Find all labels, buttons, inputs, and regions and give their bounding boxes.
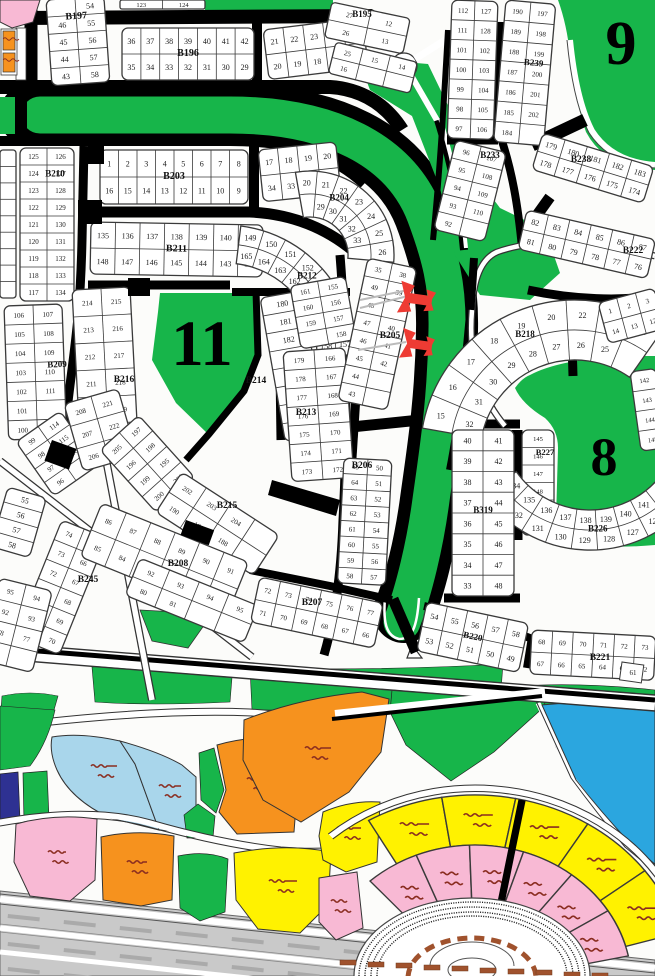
svg-text:B209: B209 xyxy=(47,359,67,370)
svg-text:200: 200 xyxy=(532,70,544,79)
svg-text:57: 57 xyxy=(370,573,378,581)
svg-text:9: 9 xyxy=(606,10,637,78)
svg-text:184: 184 xyxy=(501,129,513,138)
svg-text:145: 145 xyxy=(647,436,655,444)
svg-text:68: 68 xyxy=(538,638,546,646)
svg-text:26: 26 xyxy=(378,248,386,257)
svg-text:126: 126 xyxy=(55,153,66,161)
svg-text:101: 101 xyxy=(456,46,467,54)
svg-text:102: 102 xyxy=(16,388,27,396)
svg-text:126: 126 xyxy=(649,517,655,526)
svg-text:124: 124 xyxy=(28,170,39,178)
svg-text:37: 37 xyxy=(464,499,472,508)
svg-text:123: 123 xyxy=(28,187,39,195)
svg-text:19: 19 xyxy=(293,59,302,69)
svg-text:25: 25 xyxy=(375,229,383,238)
svg-text:58: 58 xyxy=(346,572,354,580)
svg-text:21: 21 xyxy=(322,180,330,189)
svg-text:127: 127 xyxy=(627,528,639,537)
svg-text:17: 17 xyxy=(467,358,475,367)
svg-text:38: 38 xyxy=(165,37,173,46)
svg-text:31: 31 xyxy=(203,63,211,72)
svg-text:67: 67 xyxy=(537,660,545,668)
svg-text:27: 27 xyxy=(552,343,560,352)
svg-text:18: 18 xyxy=(313,57,322,67)
svg-text:16: 16 xyxy=(105,187,113,196)
svg-text:128: 128 xyxy=(55,187,66,195)
svg-text:8: 8 xyxy=(591,427,618,487)
svg-text:62: 62 xyxy=(349,510,357,518)
svg-text:106: 106 xyxy=(477,126,488,134)
svg-text:B207: B207 xyxy=(302,598,323,608)
svg-text:189: 189 xyxy=(510,28,522,37)
svg-text:149: 149 xyxy=(244,233,256,242)
svg-text:103: 103 xyxy=(479,67,490,75)
svg-text:B203: B203 xyxy=(163,171,185,182)
svg-text:177: 177 xyxy=(296,394,308,403)
svg-text:34: 34 xyxy=(267,183,276,193)
svg-text:20: 20 xyxy=(273,62,282,72)
svg-text:112: 112 xyxy=(458,7,469,15)
svg-text:22: 22 xyxy=(290,34,299,44)
svg-text:29: 29 xyxy=(508,361,516,370)
svg-text:185: 185 xyxy=(503,108,515,117)
svg-text:213: 213 xyxy=(83,326,94,335)
svg-text:36: 36 xyxy=(127,37,135,46)
svg-text:41: 41 xyxy=(222,37,230,46)
svg-text:B195: B195 xyxy=(352,9,372,19)
svg-text:171: 171 xyxy=(331,447,343,456)
svg-text:46: 46 xyxy=(495,540,503,549)
svg-text:131: 131 xyxy=(532,524,544,533)
svg-text:18: 18 xyxy=(490,337,498,346)
svg-text:20: 20 xyxy=(547,313,555,322)
svg-text:107: 107 xyxy=(42,310,53,318)
svg-text:53: 53 xyxy=(373,511,381,519)
svg-text:33: 33 xyxy=(165,63,173,72)
svg-text:10: 10 xyxy=(216,187,224,196)
svg-text:B222: B222 xyxy=(623,246,644,256)
svg-text:178: 178 xyxy=(295,375,307,384)
svg-text:15: 15 xyxy=(124,187,132,196)
svg-text:24: 24 xyxy=(367,212,375,221)
svg-text:145: 145 xyxy=(533,436,543,443)
svg-text:144: 144 xyxy=(645,416,655,424)
svg-text:33: 33 xyxy=(464,582,472,591)
svg-text:5: 5 xyxy=(181,160,185,169)
svg-text:55: 55 xyxy=(87,18,96,28)
svg-text:52: 52 xyxy=(374,495,382,503)
svg-text:60: 60 xyxy=(348,541,356,549)
svg-text:215: 215 xyxy=(111,298,122,307)
svg-text:20: 20 xyxy=(303,179,311,188)
svg-text:99: 99 xyxy=(457,86,465,94)
svg-text:66: 66 xyxy=(557,661,565,669)
svg-text:32: 32 xyxy=(184,63,192,72)
svg-text:13: 13 xyxy=(161,187,169,196)
svg-text:4: 4 xyxy=(163,160,167,169)
svg-text:151: 151 xyxy=(285,250,297,259)
svg-text:65: 65 xyxy=(578,662,586,670)
svg-text:143: 143 xyxy=(219,259,231,268)
svg-text:54: 54 xyxy=(86,1,95,11)
svg-text:143: 143 xyxy=(642,397,653,405)
svg-text:139: 139 xyxy=(195,233,207,242)
svg-text:105: 105 xyxy=(14,331,25,339)
svg-text:39: 39 xyxy=(464,457,472,466)
svg-text:135: 135 xyxy=(523,495,535,504)
svg-text:118: 118 xyxy=(28,272,39,280)
svg-text:130: 130 xyxy=(555,532,567,541)
svg-text:45: 45 xyxy=(59,38,68,48)
svg-text:20: 20 xyxy=(323,151,332,161)
svg-text:12: 12 xyxy=(179,187,187,196)
svg-text:47: 47 xyxy=(495,561,503,570)
svg-text:30: 30 xyxy=(489,378,497,387)
svg-text:18: 18 xyxy=(284,155,293,165)
svg-text:100: 100 xyxy=(456,66,467,74)
svg-text:40: 40 xyxy=(464,436,472,445)
svg-text:127: 127 xyxy=(481,8,492,16)
svg-text:40: 40 xyxy=(203,37,211,46)
svg-text:109: 109 xyxy=(44,349,55,357)
svg-text:B226: B226 xyxy=(588,524,608,534)
svg-text:217: 217 xyxy=(114,352,125,361)
svg-text:15: 15 xyxy=(437,412,445,421)
svg-text:B239: B239 xyxy=(523,57,544,69)
svg-text:136: 136 xyxy=(122,232,134,241)
svg-text:132: 132 xyxy=(55,255,66,263)
svg-text:8: 8 xyxy=(237,160,241,169)
svg-text:166: 166 xyxy=(325,354,337,363)
svg-text:101: 101 xyxy=(17,407,28,415)
svg-text:34: 34 xyxy=(146,63,154,72)
svg-text:188: 188 xyxy=(508,48,520,57)
svg-text:146: 146 xyxy=(146,258,158,267)
svg-text:2: 2 xyxy=(126,160,130,169)
svg-text:30: 30 xyxy=(329,207,337,216)
svg-text:51: 51 xyxy=(375,480,383,488)
svg-text:169: 169 xyxy=(328,410,340,419)
svg-text:44: 44 xyxy=(60,55,69,65)
svg-text:55: 55 xyxy=(372,542,380,550)
svg-text:25: 25 xyxy=(601,345,609,354)
svg-text:134: 134 xyxy=(55,289,66,297)
svg-text:63: 63 xyxy=(350,494,358,502)
svg-text:104: 104 xyxy=(478,86,489,94)
svg-text:14: 14 xyxy=(142,187,150,196)
svg-text:B319: B319 xyxy=(473,505,493,515)
svg-text:214: 214 xyxy=(82,299,93,308)
svg-text:106: 106 xyxy=(13,311,24,319)
svg-text:B208: B208 xyxy=(168,559,189,569)
svg-text:B238: B238 xyxy=(571,155,592,165)
svg-text:147: 147 xyxy=(533,471,544,478)
svg-text:190: 190 xyxy=(512,7,524,16)
svg-text:57: 57 xyxy=(89,53,98,63)
svg-text:32: 32 xyxy=(466,420,474,429)
svg-text:111: 111 xyxy=(45,387,56,395)
svg-text:B197: B197 xyxy=(65,10,87,22)
svg-text:29: 29 xyxy=(317,203,325,212)
svg-text:139: 139 xyxy=(600,515,612,524)
svg-text:211: 211 xyxy=(86,380,97,389)
svg-text:B214: B214 xyxy=(246,376,267,386)
svg-text:197: 197 xyxy=(537,10,549,19)
svg-text:73: 73 xyxy=(641,643,649,651)
svg-text:179: 179 xyxy=(294,356,306,365)
svg-text:105: 105 xyxy=(477,106,488,114)
svg-text:72: 72 xyxy=(621,642,629,650)
svg-text:35: 35 xyxy=(464,540,472,549)
svg-text:B245: B245 xyxy=(78,575,99,585)
svg-text:17: 17 xyxy=(265,158,274,168)
svg-text:38: 38 xyxy=(464,478,472,487)
svg-text:187: 187 xyxy=(507,68,519,77)
svg-text:140: 140 xyxy=(620,510,632,519)
svg-text:111: 111 xyxy=(457,26,468,34)
svg-text:9: 9 xyxy=(237,187,241,196)
svg-text:174: 174 xyxy=(300,449,312,458)
svg-text:B196: B196 xyxy=(177,48,199,59)
svg-text:120: 120 xyxy=(28,238,39,246)
svg-text:11: 11 xyxy=(198,187,206,196)
svg-text:B204: B204 xyxy=(329,192,349,202)
svg-text:28: 28 xyxy=(529,349,537,358)
svg-text:148: 148 xyxy=(97,257,109,266)
svg-text:39: 39 xyxy=(184,37,192,46)
svg-text:43: 43 xyxy=(495,478,503,487)
svg-text:131: 131 xyxy=(55,238,66,246)
svg-text:164: 164 xyxy=(258,257,270,266)
svg-text:42: 42 xyxy=(495,457,503,466)
svg-text:201: 201 xyxy=(530,90,542,99)
svg-text:B213: B213 xyxy=(296,408,317,418)
svg-text:165: 165 xyxy=(240,252,252,261)
svg-text:133: 133 xyxy=(55,272,66,280)
svg-text:69: 69 xyxy=(559,639,567,647)
svg-text:61: 61 xyxy=(349,525,357,533)
svg-text:B233: B233 xyxy=(480,150,500,160)
svg-text:137: 137 xyxy=(560,513,572,522)
svg-text:B218: B218 xyxy=(515,329,535,339)
svg-text:23: 23 xyxy=(310,32,319,42)
svg-text:100: 100 xyxy=(17,426,28,434)
svg-text:B212: B212 xyxy=(297,271,317,281)
svg-text:128: 128 xyxy=(480,27,491,35)
svg-text:212: 212 xyxy=(85,353,96,362)
svg-text:36: 36 xyxy=(464,519,472,528)
svg-text:147: 147 xyxy=(121,258,133,267)
svg-text:198: 198 xyxy=(535,30,547,39)
svg-text:B215: B215 xyxy=(217,501,238,511)
svg-text:150: 150 xyxy=(265,240,277,249)
svg-text:21: 21 xyxy=(270,37,279,47)
svg-text:202: 202 xyxy=(528,111,540,120)
svg-text:98: 98 xyxy=(456,105,464,113)
svg-text:22: 22 xyxy=(579,311,587,320)
svg-text:168: 168 xyxy=(327,391,339,400)
svg-text:58: 58 xyxy=(91,70,100,80)
svg-text:35: 35 xyxy=(127,63,135,72)
svg-text:128: 128 xyxy=(603,535,615,544)
svg-text:108: 108 xyxy=(43,330,54,338)
svg-text:54: 54 xyxy=(373,527,381,535)
svg-text:50: 50 xyxy=(376,464,384,472)
svg-text:23: 23 xyxy=(355,198,363,207)
svg-text:170: 170 xyxy=(330,428,342,437)
svg-text:30: 30 xyxy=(222,63,230,72)
svg-text:31: 31 xyxy=(475,397,483,406)
svg-text:B221: B221 xyxy=(590,653,611,663)
svg-text:103: 103 xyxy=(15,369,26,377)
svg-text:34: 34 xyxy=(464,561,472,570)
svg-text:173: 173 xyxy=(301,468,313,477)
svg-text:59: 59 xyxy=(347,557,355,565)
svg-text:29: 29 xyxy=(241,63,249,72)
svg-text:26: 26 xyxy=(577,341,585,350)
svg-text:145: 145 xyxy=(170,258,182,267)
svg-text:216: 216 xyxy=(112,325,123,334)
svg-text:31: 31 xyxy=(339,215,347,224)
svg-text:117: 117 xyxy=(28,289,39,297)
svg-text:64: 64 xyxy=(599,663,607,671)
svg-text:144: 144 xyxy=(195,259,207,268)
svg-text:12: 12 xyxy=(649,317,655,327)
svg-text:124: 124 xyxy=(179,2,190,9)
svg-text:16: 16 xyxy=(449,383,457,392)
svg-text:B216: B216 xyxy=(114,375,135,385)
svg-text:44: 44 xyxy=(495,499,503,508)
svg-text:70: 70 xyxy=(579,640,587,648)
svg-text:175: 175 xyxy=(299,431,311,440)
svg-text:64: 64 xyxy=(351,479,359,487)
svg-text:121: 121 xyxy=(28,221,39,229)
svg-text:71: 71 xyxy=(600,641,608,649)
svg-text:32: 32 xyxy=(348,224,356,233)
svg-text:129: 129 xyxy=(579,536,591,545)
svg-text:130: 130 xyxy=(55,221,66,229)
svg-text:129: 129 xyxy=(55,204,66,212)
svg-text:102: 102 xyxy=(479,47,490,55)
svg-text:141: 141 xyxy=(638,500,650,509)
svg-text:B206: B206 xyxy=(352,461,373,471)
svg-text:43: 43 xyxy=(62,72,71,82)
svg-text:33: 33 xyxy=(353,236,361,245)
svg-text:3: 3 xyxy=(144,160,148,169)
svg-text:45: 45 xyxy=(495,519,503,528)
svg-text:97: 97 xyxy=(455,125,463,133)
svg-text:1: 1 xyxy=(107,160,111,169)
svg-text:163: 163 xyxy=(274,266,286,275)
svg-text:7: 7 xyxy=(218,160,222,169)
svg-text:123: 123 xyxy=(136,2,146,9)
svg-text:56: 56 xyxy=(88,36,97,46)
svg-text:186: 186 xyxy=(505,88,517,97)
svg-text:19: 19 xyxy=(303,153,312,163)
svg-text:125: 125 xyxy=(28,153,39,161)
svg-text:142: 142 xyxy=(639,377,650,385)
svg-text:33: 33 xyxy=(287,181,296,191)
svg-text:6: 6 xyxy=(200,160,204,169)
svg-text:136: 136 xyxy=(540,506,552,515)
svg-text:41: 41 xyxy=(495,436,503,445)
svg-text:167: 167 xyxy=(326,373,338,382)
svg-text:119: 119 xyxy=(28,255,39,263)
svg-text:B227: B227 xyxy=(536,447,555,457)
svg-text:56: 56 xyxy=(371,558,379,566)
svg-text:B210: B210 xyxy=(45,169,65,179)
svg-text:42: 42 xyxy=(241,37,249,46)
svg-text:37: 37 xyxy=(146,37,154,46)
svg-text:B205: B205 xyxy=(380,331,401,341)
svg-text:61: 61 xyxy=(630,669,638,677)
svg-text:138: 138 xyxy=(171,232,183,241)
svg-text:48: 48 xyxy=(495,582,503,591)
svg-text:172: 172 xyxy=(332,465,344,474)
svg-text:135: 135 xyxy=(97,231,109,240)
svg-text:11: 11 xyxy=(171,308,232,380)
svg-text:B211: B211 xyxy=(166,243,187,254)
svg-text:140: 140 xyxy=(220,233,232,242)
svg-text:104: 104 xyxy=(15,350,26,358)
svg-text:122: 122 xyxy=(28,204,39,212)
svg-text:137: 137 xyxy=(146,232,158,241)
